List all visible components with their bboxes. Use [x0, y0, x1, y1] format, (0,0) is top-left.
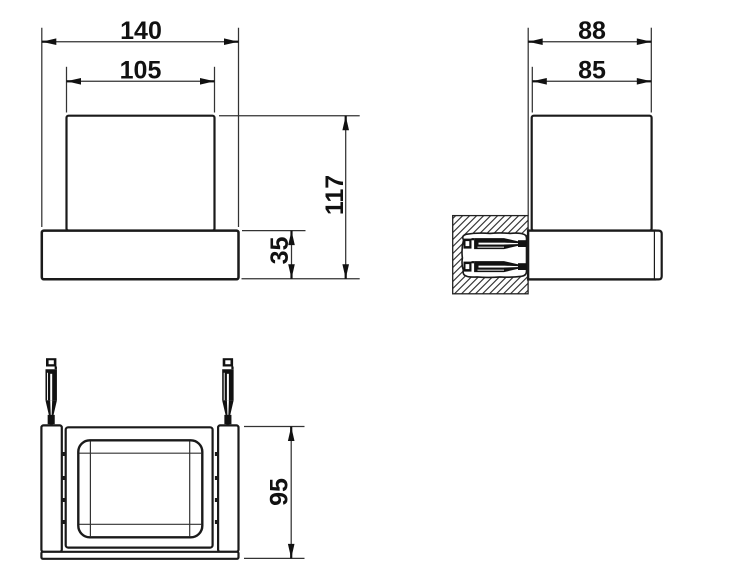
svg-text:88: 88 — [578, 17, 606, 45]
svg-text:85: 85 — [578, 57, 606, 85]
svg-text:117: 117 — [321, 175, 349, 215]
svg-text:140: 140 — [120, 17, 162, 45]
svg-text:95: 95 — [266, 478, 294, 506]
svg-text:105: 105 — [120, 57, 162, 85]
svg-text:35: 35 — [266, 237, 294, 265]
